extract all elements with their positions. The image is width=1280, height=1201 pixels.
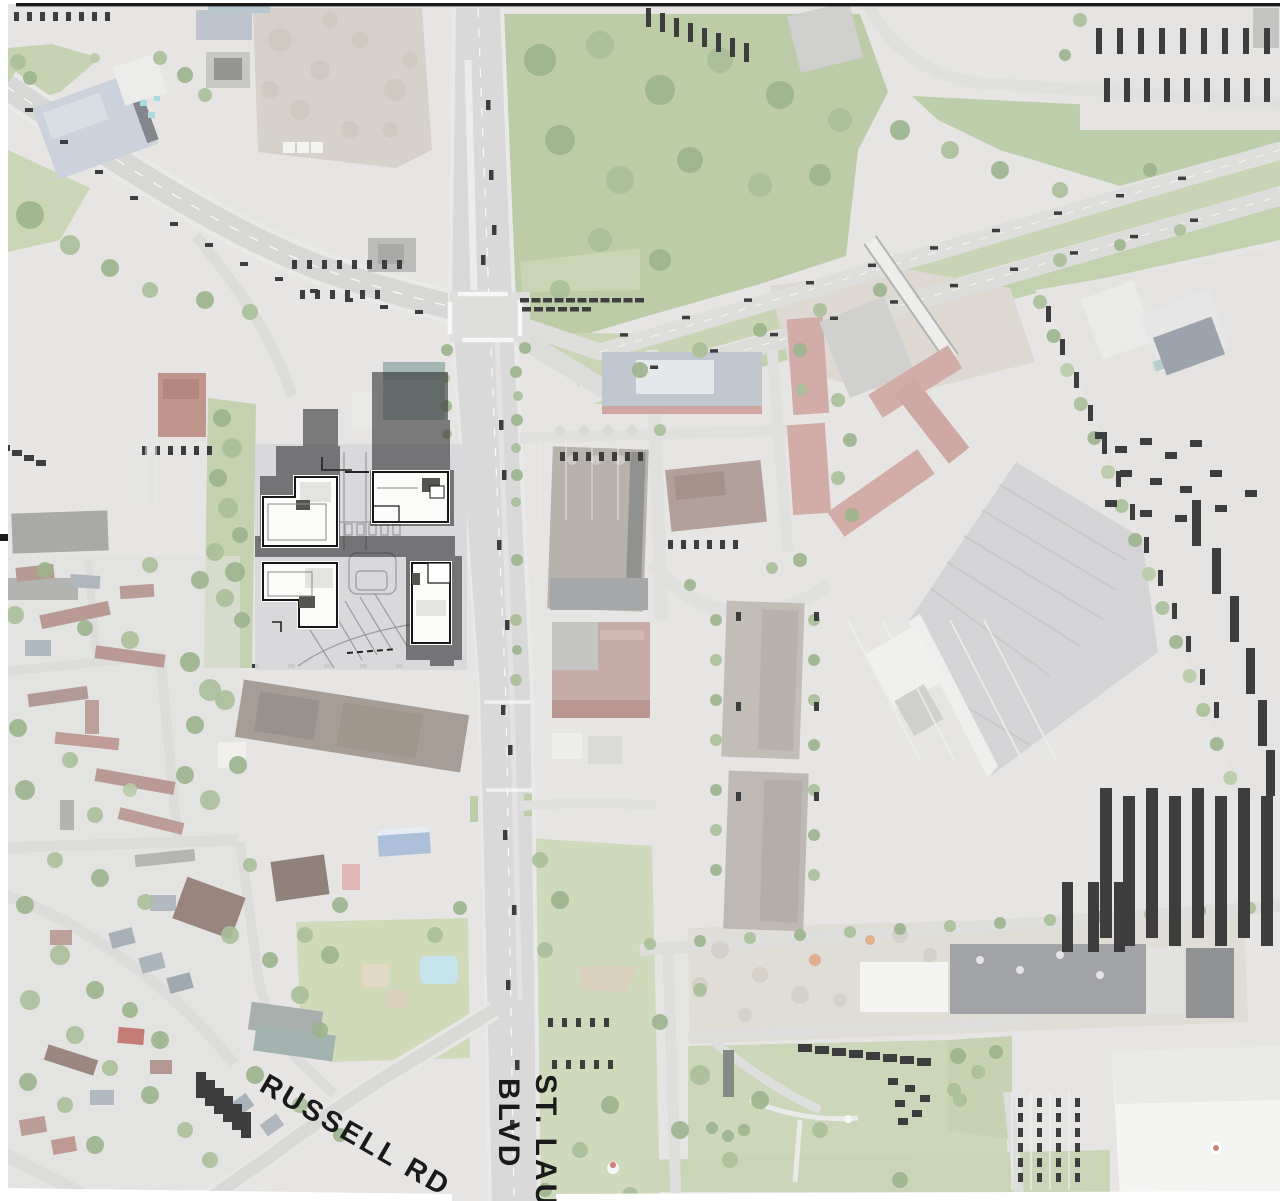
st-laurent-label-line1: ST. LAUR (529, 1074, 562, 1201)
edge-tick (0, 534, 8, 541)
st-laurent-label-line2: BLVD (492, 1078, 525, 1169)
photo-wash (0, 0, 1280, 1201)
aerial-site-map: RUSSELL RD ST. LAUR BLVD (0, 0, 1280, 1201)
proposed-building-ne (371, 470, 450, 524)
aerial-photo-canvas: RUSSELL RD ST. LAUR BLVD (0, 0, 1280, 1201)
proposed-building-se (410, 561, 452, 645)
photo-border-line (16, 3, 1280, 6)
